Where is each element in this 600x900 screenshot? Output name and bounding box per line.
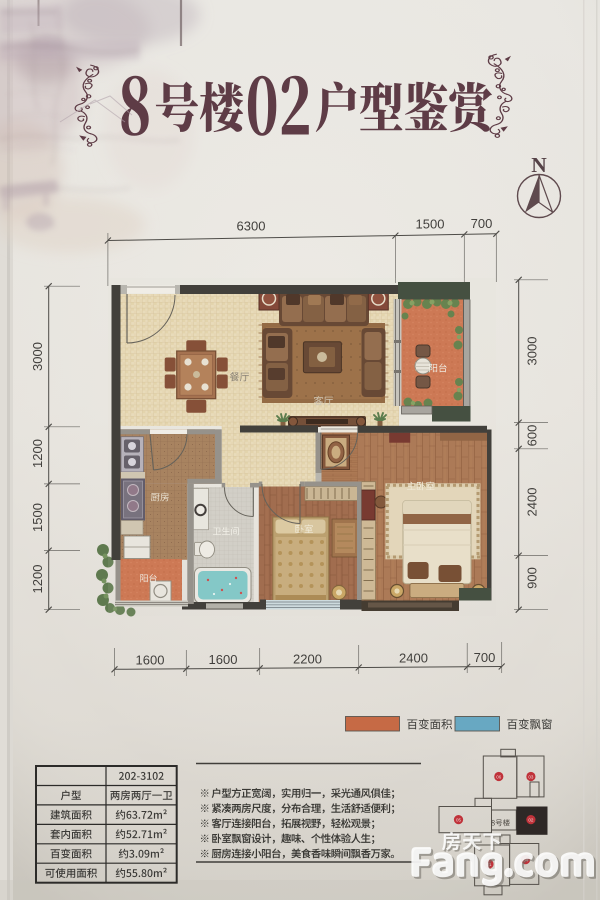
- svg-text:06: 06: [496, 774, 502, 779]
- svg-text:2400: 2400: [525, 488, 540, 517]
- svg-text:2400: 2400: [399, 651, 428, 666]
- svg-text:700: 700: [471, 216, 493, 231]
- svg-text:3000: 3000: [525, 337, 540, 366]
- svg-text:600: 600: [525, 425, 540, 447]
- svg-text:03: 03: [528, 774, 534, 779]
- svg-text:1600: 1600: [209, 652, 238, 667]
- svg-text:1500: 1500: [416, 217, 445, 232]
- svg-text:6300: 6300: [237, 219, 266, 234]
- svg-text:02: 02: [528, 817, 534, 822]
- svg-text:3000: 3000: [30, 342, 45, 371]
- svg-text:1200: 1200: [30, 565, 45, 594]
- svg-text:700: 700: [474, 650, 496, 665]
- svg-text:1600: 1600: [136, 653, 165, 668]
- svg-text:05: 05: [456, 817, 462, 822]
- svg-text:2200: 2200: [293, 652, 322, 667]
- svg-text:N: N: [531, 153, 547, 177]
- svg-text:1200: 1200: [30, 439, 45, 468]
- svg-text:1500: 1500: [30, 503, 45, 532]
- svg-text:900: 900: [525, 567, 540, 589]
